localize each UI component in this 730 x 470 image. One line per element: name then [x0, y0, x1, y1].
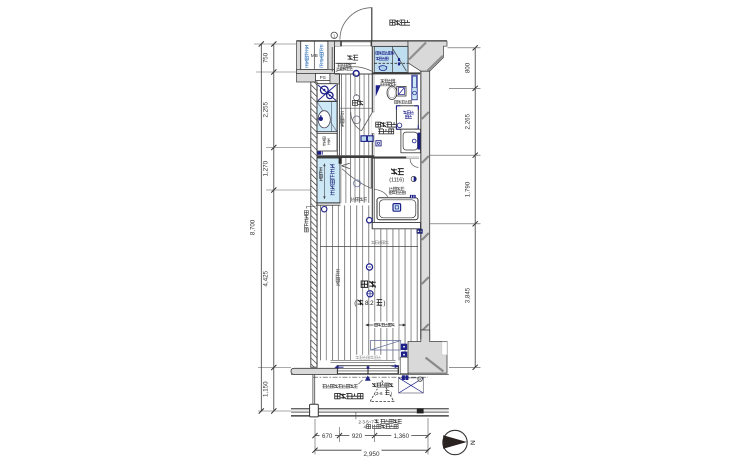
svg-text:670: 670 — [322, 433, 333, 440]
svg-text:): ) — [383, 300, 385, 307]
svg-text:(1116): (1116) — [389, 178, 404, 184]
svg-text:1,150: 1,150 — [263, 381, 270, 397]
svg-text:2,255: 2,255 — [263, 101, 270, 117]
svg-text:2,265: 2,265 — [464, 113, 471, 129]
svg-text:1,360: 1,360 — [394, 433, 410, 440]
svg-text:1,270: 1,270 — [263, 160, 270, 176]
svg-text:1,790: 1,790 — [464, 181, 471, 197]
svg-text:PS: PS — [320, 75, 326, 80]
svg-text:8.2: 8.2 — [365, 300, 374, 307]
svg-text:MB: MB — [311, 53, 318, 59]
svg-text:2,950: 2,950 — [364, 451, 380, 458]
svg-text:N: N — [469, 440, 476, 445]
svg-text:2·3·5~7: 2·3·5~7 — [359, 419, 375, 424]
svg-text:750: 750 — [263, 52, 270, 63]
svg-text:8,700: 8,700 — [250, 219, 257, 235]
svg-text:4,425: 4,425 — [263, 270, 270, 286]
svg-text:920: 920 — [352, 433, 363, 440]
svg-text:800: 800 — [464, 62, 471, 73]
svg-text:(3-6: (3-6 — [374, 391, 383, 396]
svg-text:3,845: 3,845 — [464, 287, 471, 303]
